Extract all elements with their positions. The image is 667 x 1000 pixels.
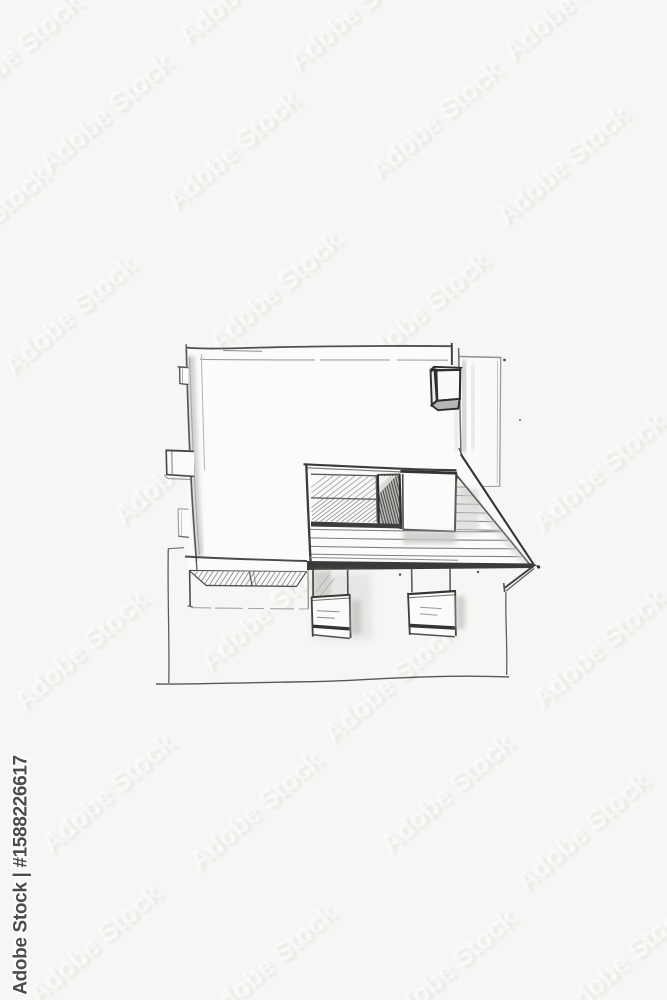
svg-text:Adobe Stock | #1588226617: Adobe Stock | #1588226617 — [11, 755, 32, 994]
